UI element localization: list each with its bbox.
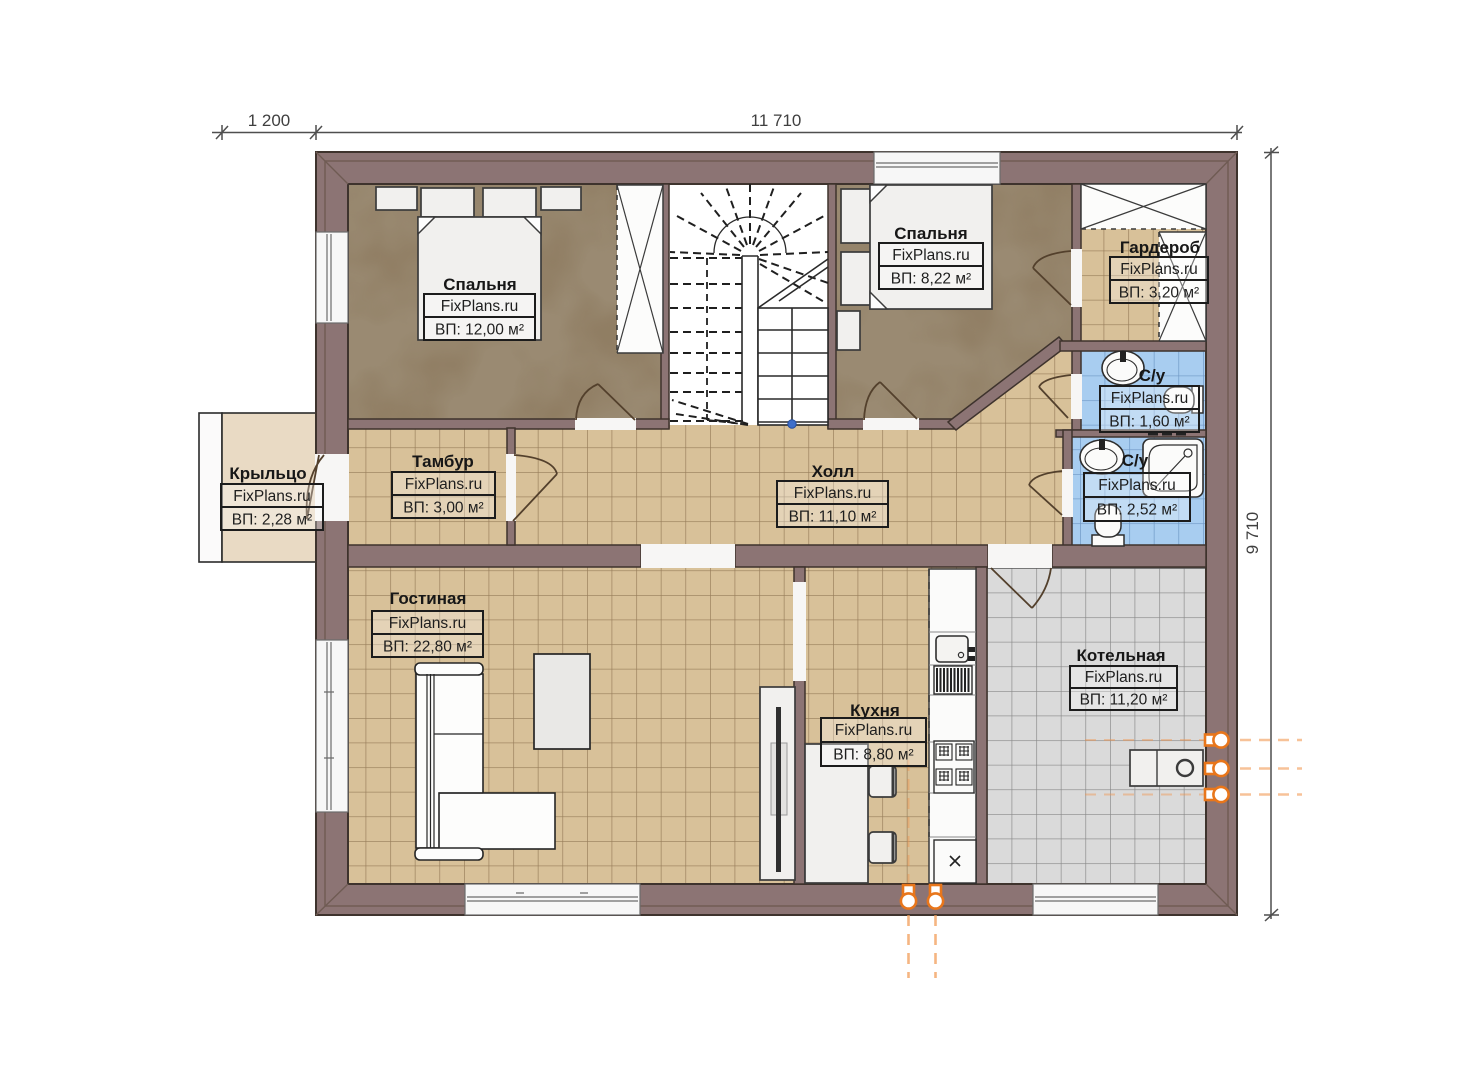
svg-text:9 710: 9 710 bbox=[1243, 512, 1262, 555]
svg-text:ВП: 3,20 м²: ВП: 3,20 м² bbox=[1119, 285, 1199, 302]
svg-text:С/у: С/у bbox=[1122, 451, 1149, 470]
svg-text:Гостиная: Гостиная bbox=[390, 589, 467, 608]
svg-text:FixPlans.ru: FixPlans.ru bbox=[441, 298, 519, 315]
svg-text:С/у: С/у bbox=[1139, 366, 1166, 385]
svg-text:ВП: 1,60 м²: ВП: 1,60 м² bbox=[1109, 414, 1189, 431]
svg-text:ВП: 8,80 м²: ВП: 8,80 м² bbox=[833, 747, 913, 764]
svg-text:ВП: 22,80 м²: ВП: 22,80 м² bbox=[383, 639, 472, 656]
svg-text:Спальня: Спальня bbox=[894, 224, 967, 243]
svg-text:FixPlans.ru: FixPlans.ru bbox=[233, 488, 311, 505]
svg-text:Котельная: Котельная bbox=[1076, 646, 1165, 665]
svg-text:Гардероб: Гардероб bbox=[1120, 238, 1200, 257]
svg-text:FixPlans.ru: FixPlans.ru bbox=[892, 247, 970, 264]
svg-text:ВП: 11,10 м²: ВП: 11,10 м² bbox=[789, 509, 877, 526]
svg-text:FixPlans.ru: FixPlans.ru bbox=[1120, 261, 1198, 278]
svg-text:ВП: 8,22 м²: ВП: 8,22 м² bbox=[891, 271, 971, 288]
svg-text:FixPlans.ru: FixPlans.ru bbox=[405, 476, 483, 493]
svg-text:Спальня: Спальня bbox=[443, 275, 516, 294]
svg-text:Крыльцо: Крыльцо bbox=[229, 464, 306, 483]
svg-text:ВП: 11,20 м²: ВП: 11,20 м² bbox=[1080, 692, 1168, 709]
svg-text:Тамбур: Тамбур bbox=[412, 452, 474, 471]
svg-text:FixPlans.ru: FixPlans.ru bbox=[389, 615, 467, 632]
svg-text:ВП: 3,00 м²: ВП: 3,00 м² bbox=[403, 500, 483, 517]
svg-text:FixPlans.ru: FixPlans.ru bbox=[794, 485, 872, 502]
svg-text:ВП: 2,28 м²: ВП: 2,28 м² bbox=[232, 512, 312, 529]
svg-text:11 710: 11 710 bbox=[751, 111, 802, 130]
svg-text:Холл: Холл bbox=[812, 462, 855, 481]
svg-text:1 200: 1 200 bbox=[248, 111, 291, 130]
svg-text:FixPlans.ru: FixPlans.ru bbox=[1098, 477, 1176, 494]
svg-text:FixPlans.ru: FixPlans.ru bbox=[1085, 669, 1163, 686]
svg-text:ВП: 2,52 м²: ВП: 2,52 м² bbox=[1097, 502, 1177, 519]
svg-text:FixPlans.ru: FixPlans.ru bbox=[1111, 390, 1189, 407]
svg-text:FixPlans.ru: FixPlans.ru bbox=[835, 722, 913, 739]
svg-text:ВП: 12,00 м²: ВП: 12,00 м² bbox=[435, 322, 524, 339]
